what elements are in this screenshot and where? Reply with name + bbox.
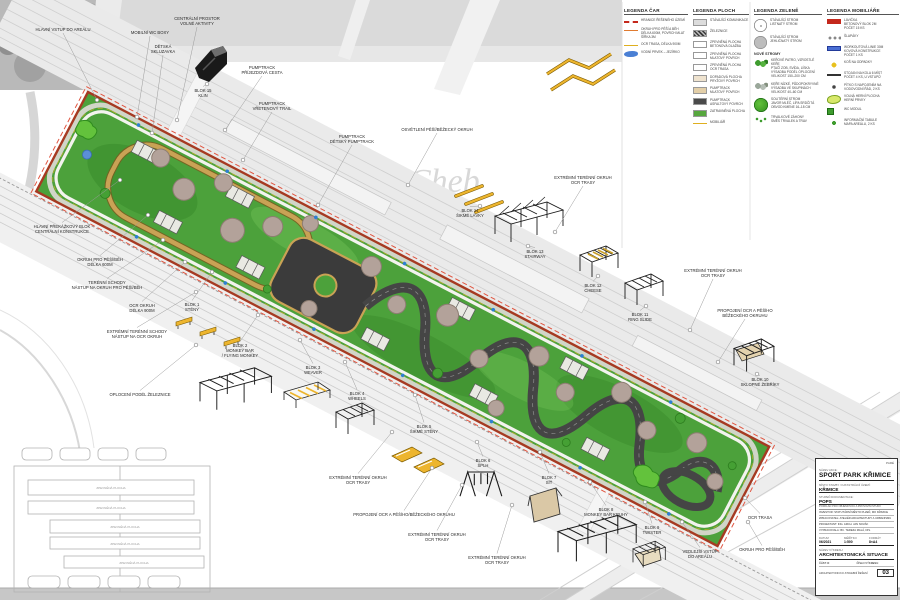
legend-item: STÁVAJÍCÍ KOMUNIKACE: [693, 18, 749, 26]
drawing-title: ARCHITEKTONICKÁ SITUACE: [819, 553, 894, 561]
callout-label: EXTRÉMNÍ TERÉNNÍ OKRUHOCR TRASY: [408, 532, 465, 542]
leader-node: [223, 128, 227, 132]
dots-gray-swatch: [827, 34, 841, 41]
line-yellow-swatch: [624, 45, 638, 46]
legend-item-label: ŠLAPÁKY: [844, 34, 859, 38]
leader-node: [390, 430, 394, 434]
meta-row: DATUM06/2021 MĚŘÍTKO1:500 FORMÁT8×A4: [819, 535, 894, 546]
legend-item: ZPEVNĚNÁ PLOCHA MLATOVÝ POVRCH: [693, 52, 749, 60]
callout-label: EXTRÉMNÍ TERÉNNÍ OKRUHOCR TRASY: [554, 175, 611, 185]
legend-item: PUMPTRACK MLATOVÝ POVRCH: [693, 86, 749, 94]
legend-item-label: HRANICE ŘEŠENÉHO ÚZEMÍ: [641, 18, 685, 22]
leader-node: [150, 131, 154, 135]
leader-node: [553, 230, 557, 234]
legend-item: TRVALKOVÉ ZÁHONY SMĚS TRVALEK A TRAV: [754, 115, 822, 123]
sw-tan-swatch: [693, 87, 707, 94]
legend-item-label: STÁVAJÍCÍ KOMUNIKACE: [710, 18, 748, 22]
legend-item-label: PUMPTRACK ASFALTOVÝ POVRCH: [710, 98, 743, 106]
leader-node: [175, 118, 179, 122]
legend-item-label: KOŠ NA ODPADKY: [844, 60, 872, 64]
leader-node: [161, 238, 165, 242]
drawing-sheet: Cheb: [0, 0, 900, 600]
parking-lot: [14, 448, 210, 592]
sw-white-swatch: [693, 64, 707, 71]
leader-node: [596, 274, 600, 278]
leader-line: [358, 432, 392, 474]
leader-node: [526, 244, 530, 248]
legend-item-label: SOLITÉRNÍ STROM JAVOR MLÉČ, LÍPA SRDČITÁ…: [771, 97, 814, 109]
dot-green-swatch: [827, 119, 841, 126]
blob-blue-swatch: [624, 51, 638, 57]
tree-gray-swatch: [754, 36, 767, 49]
legend-item-label: ZPEVNĚNÁ PLOCHA BETONOVÁ DLAŽBA: [710, 40, 741, 48]
callout-label: PUMPTRACKVŘETENOVÝ TRAIL: [253, 101, 292, 111]
leader-node: [475, 440, 479, 444]
legend-item: PÍTKO S NAPOJENÍM NA VODOVODNÍ ŘÁD, 2 KS: [827, 83, 899, 91]
legend-item: ZATRAVNĚNÁ PLOCHA: [693, 109, 749, 117]
leader-line: [555, 186, 583, 232]
place-name: KŘIMICE: [819, 487, 894, 494]
cluster-green-swatch: [754, 59, 768, 68]
callout-label: BLOK 13STAIRWAY: [524, 249, 545, 259]
callout-label: BLOK 9TWISTER: [643, 525, 662, 535]
leader-node: [743, 496, 747, 500]
callout-label: EXTRÉMNÍ TERÉNNÍ OKRUHOCR TRASY: [684, 268, 741, 278]
callout-label: OPLOCENÍ PODÉL ŽELEZNICE: [109, 392, 170, 397]
callout-label: BLOK 12CHEESE: [584, 283, 602, 293]
legend-item-label: LAVIČKA BETONOVÝ BLOK 2M POČET 15 KS: [844, 18, 876, 30]
leader-node: [413, 393, 417, 397]
legend-title: LEGENDA MOBILIÁŘE: [827, 8, 899, 15]
leader-node: [746, 520, 750, 524]
leader-node: [256, 313, 260, 317]
sw-green-swatch: [693, 110, 707, 117]
callout-label: OCR OKRUHDÉLKA 900M: [129, 303, 155, 313]
legend-item-label: INFORMAČNÍ TABULE MAPA AREÁLU, 2 KS: [844, 118, 877, 126]
legend-column: LEGENDA ČARHRANICE ŘEŠENÉHO ÚZEMÍOKRUH P…: [624, 8, 688, 130]
legend-item-label: WORKOUTOVÁ LINIE 30M KOVOVÁ KONSTRUKCE P…: [844, 45, 883, 57]
legend-item: ŠLAPÁKY: [827, 34, 899, 42]
legend-item: KOŠ NA ODPADKY: [827, 60, 899, 68]
sw-white-swatch: [693, 52, 707, 59]
leader-node: [478, 204, 482, 208]
leader-node: [194, 343, 198, 347]
legend-title: LEGENDA PLOCH: [693, 8, 749, 15]
callout-label: HLAVNÍ PŘEKÁŽKOVÝ BLOKCENTRÁLNÍ KONSTRUK…: [34, 224, 91, 234]
leader-line: [437, 485, 462, 531]
dots-green-swatch: [754, 116, 768, 123]
svg-text:ZPEVNĚNÁ PLOCHA: ZPEVNĚNÁ PLOCHA: [119, 560, 148, 565]
title-block: PARÉ NÁZEV AKCE: SPORT PARK KŘIMICE MÍST…: [815, 458, 898, 596]
legend-item: VOLNÁ HERNÍ PLOCHA HERNÍ PRVKY: [827, 94, 899, 104]
callout-label: PUMPTRACKPŘÍJEZDOVÁ CESTA: [241, 65, 282, 75]
legend-item: DOPADOVÁ PLOCHA PRYŽOVÝ POVRCH: [693, 75, 749, 83]
leader-node: [194, 290, 198, 294]
legend-item: OCR TRASA, DÉLKA 900M: [624, 42, 688, 46]
legend-subheader: NOVÉ STROMY: [754, 52, 822, 56]
sw-dark-swatch: [693, 98, 707, 105]
legend-item: SOLITÉRNÍ STROM JAVOR MLÉČ, LÍPA SRDČITÁ…: [754, 97, 822, 112]
leader-node: [460, 483, 464, 487]
leader-node: [510, 503, 514, 507]
legend-item: LAVIČKA BETONOVÝ BLOK 2M POČET 15 KS: [827, 18, 899, 30]
legend-item: WC MODUL: [827, 107, 899, 115]
leader-node: [118, 178, 122, 182]
leader-node: [406, 183, 410, 187]
legend-item-label: STÁVAJÍCÍ STROM JEHLIČNATÝ STROM: [770, 35, 802, 43]
legend-item: KEŘE NÍZKÉ, PŮDOPOKRYVNÉ VÝSADBA VE SKUP…: [754, 82, 822, 94]
leader-node: [716, 360, 720, 364]
dash-dark-swatch: [827, 74, 841, 76]
legend-item-label: KEŘE NÍZKÉ, PŮDOPOKRYVNÉ VÝSADBA VE SKUP…: [771, 82, 819, 94]
legend-item-label: WC MODUL: [844, 107, 862, 111]
sw-lightgray-swatch: [693, 19, 707, 26]
legend-item: ZPEVNĚNÁ PLOCHA BETONOVÁ DLAŽBA: [693, 40, 749, 48]
svg-text:ZPEVNĚNÁ PLOCHA: ZPEVNĚNÁ PLOCHA: [110, 541, 139, 546]
leader-node: [588, 480, 592, 484]
leader-node: [146, 213, 150, 217]
callout-label: BLOK 1STĚNY: [185, 302, 200, 312]
leader-node: [644, 304, 648, 308]
line-red-dash-swatch: [624, 21, 638, 23]
legend-item: WORKOUTOVÁ LINIE 30M KOVOVÁ KONSTRUKCE P…: [827, 45, 899, 57]
legend-panel: LEGENDA ČARHRANICE ŘEŠENÉHO ÚZEMÍOKRUH P…: [624, 8, 898, 130]
leader-node: [183, 260, 187, 264]
pare-number: PARÉ: [819, 461, 894, 465]
leader-node: [430, 466, 434, 470]
callout-label: HLAVNÍ VSTUP DO AREÁLU: [36, 27, 91, 32]
leader-node: [316, 203, 320, 207]
sw-white-swatch: [693, 41, 707, 48]
callout-label: CENTRÁLNÍ PROSTORVOLNÉ AKTIVITY: [174, 16, 220, 26]
legend-item-label: DOPADOVÁ PLOCHA PRYŽOVÝ POVRCH: [710, 75, 742, 83]
legend-item-label: TRVALKOVÉ ZÁHONY SMĚS TRVALEK A TRAV: [771, 115, 807, 123]
project-title: SPORT PARK KŘIMICE: [819, 472, 894, 481]
callout-label: BLOK 4WHEELS: [348, 391, 366, 401]
callout-label: EXTRÉMNÍ TERÉNNÍ OKRUHOCR TRASY: [468, 555, 525, 565]
legend-column: LEGENDA MOBILIÁŘELAVIČKA BETONOVÝ BLOK 2…: [827, 8, 899, 130]
legend-item-label: VODNÍ PRVEK – JEZÍRKO: [641, 50, 680, 54]
line-orange-swatch: [624, 30, 638, 31]
leader-node: [755, 372, 759, 376]
leader-node: [538, 450, 542, 454]
sw-darkhatch-swatch: [693, 30, 707, 37]
line-yellow-swatch: [693, 123, 707, 124]
leader-node: [680, 520, 684, 524]
blob-green-swatch: [827, 95, 841, 104]
svg-text:ZPEVNĚNÁ PLOCHA: ZPEVNĚNÁ PLOCHA: [96, 485, 125, 490]
legend-item: KEŘOVÉ PATRO, VZROSTLÉ KEŘE PTAČÍ ZOB, S…: [754, 58, 822, 78]
drawing-number: 03: [877, 569, 894, 577]
legend-item-label: OCR TRASA, DÉLKA 900M: [641, 42, 680, 46]
leader-node: [688, 328, 692, 332]
sw-blue-swatch: [827, 46, 841, 51]
leader-line: [140, 345, 196, 391]
legend-item-label: MOBILIÁŘ: [710, 120, 725, 124]
sw-beige-swatch: [693, 75, 707, 82]
legend-item: MOBILIÁŘ: [693, 120, 749, 124]
tree-biggreen-swatch: [754, 98, 768, 112]
leader-node: [205, 82, 209, 86]
dot-dark-swatch: [827, 83, 841, 90]
legend-item-label: STÁVAJÍCÍ STROM LISTNATÝ STROM: [770, 18, 798, 26]
sq-green-swatch: [827, 108, 834, 115]
leader-node: [298, 338, 302, 342]
legend-item-label: STOJAN NA KOLA 6 MÍST POČET 4 KS, U VSTU…: [844, 71, 882, 79]
dot-yellow-swatch: [827, 61, 841, 68]
callout-label: EXTRÉMNÍ TERÉNNÍ SCHODYNÁSTUP NA OCR OKR…: [107, 329, 167, 339]
callout-label: MOBILNÍ WC BOXY: [131, 30, 169, 35]
legend-item: VODNÍ PRVEK – JEZÍRKO: [624, 50, 688, 57]
legend-item: PUMPTRACK ASFALTOVÝ POVRCH: [693, 98, 749, 106]
leader-node: [643, 500, 647, 504]
legend-title: LEGENDA ČAR: [624, 8, 688, 15]
legend-item: OKRUH PRO PĚŠÍ A BĚH DÉLKA 600M, POVRCH …: [624, 27, 688, 39]
callout-label: PROPOJENÍ OCR A PĚŠÍHOBĚŽECKÉHO OKRUHU: [717, 308, 773, 318]
legend-item-label: ŽELEZNICE: [710, 29, 728, 33]
leader-node: [241, 158, 245, 162]
callout-label: OKRUH PRO PĚŠÍ/BĚH: [739, 547, 785, 552]
legend-item: STÁVAJÍCÍ STROM LISTNATÝ STROM: [754, 18, 822, 32]
legend-column: LEGENDA ZELENĚSTÁVAJÍCÍ STROM LISTNATÝ S…: [754, 8, 822, 130]
leader-node: [135, 115, 139, 119]
legend-item: STOJAN NA KOLA 6 MÍST POČET 4 KS, U VSTU…: [827, 71, 899, 79]
sw-red-swatch: [827, 19, 841, 24]
legend-item-label: PUMPTRACK MLATOVÝ POVRCH: [710, 86, 739, 94]
svg-text:ZPEVNĚNÁ PLOCHA: ZPEVNĚNÁ PLOCHA: [96, 505, 125, 510]
legend-item-label: KEŘOVÉ PATRO, VZROSTLÉ KEŘE PTAČÍ ZOB, S…: [771, 58, 822, 78]
legend-item-label: ZPEVNĚNÁ PLOCHA OCR TRASA: [710, 63, 741, 71]
callout-label: OCR TRASA: [748, 515, 773, 520]
legend-item-label: OKRUH PRO PĚŠÍ A BĚH DÉLKA 600M, POVRCH …: [641, 27, 685, 39]
legend-item: ŽELEZNICE: [693, 29, 749, 37]
legend-title: LEGENDA ZELENĚ: [754, 8, 822, 15]
legend-item: STÁVAJÍCÍ STROM JEHLIČNATÝ STROM: [754, 35, 822, 49]
leader-line: [748, 522, 762, 546]
legend-item-label: PÍTKO S NAPOJENÍM NA VODOVODNÍ ŘÁD, 2 KS: [844, 83, 881, 91]
callout-label: PROPOJENÍ OCR A PĚŠÍHO/BĚŽECKÉHO OKRUHU: [353, 512, 454, 517]
callout-label: EXTRÉMNÍ TERÉNNÍ OKRUHOCR TRASY: [329, 475, 386, 485]
legend-column: LEGENDA PLOCHSTÁVAJÍCÍ KOMUNIKACEŽELEZNI…: [693, 8, 749, 130]
legend-item-label: VOLNÁ HERNÍ PLOCHA HERNÍ PRVKY: [844, 94, 880, 102]
leader-line: [404, 468, 432, 511]
leader-line: [497, 505, 512, 554]
leader-node: [95, 98, 99, 102]
callout-label: OSVĚTLENÍ PĚŠÍ/BĚŽECKÝ OKRUH: [401, 127, 472, 132]
legend-item-label: ZATRAVNĚNÁ PLOCHA: [710, 109, 745, 113]
cluster-gray-swatch: [754, 82, 768, 91]
legend-item: HRANICE ŘEŠENÉHO ÚZEMÍ: [624, 18, 688, 23]
legend-item-label: ZPEVNĚNÁ PLOCHA MLATOVÝ POVRCH: [710, 52, 741, 60]
tree-outline-swatch: [754, 19, 767, 32]
leader-node: [210, 270, 214, 274]
callout-label: BLOK 3WEAVER: [304, 365, 322, 375]
svg-text:ZPEVNĚNÁ PLOCHA: ZPEVNĚNÁ PLOCHA: [110, 524, 139, 529]
legend-item: INFORMAČNÍ TABULE MAPA AREÁLU, 2 KS: [827, 118, 899, 126]
leader-node: [343, 360, 347, 364]
legend-item: ZPEVNĚNÁ PLOCHA OCR TRASA: [693, 63, 749, 71]
